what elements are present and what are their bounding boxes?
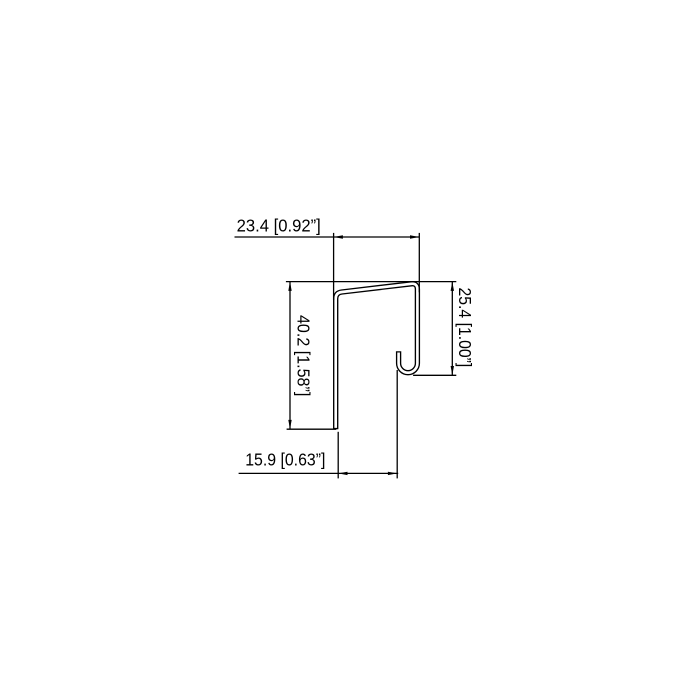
svg-text:23.4 [0.92”]: 23.4 [0.92”] [237,216,321,236]
svg-text:40.2 [1.58”]: 40.2 [1.58”] [294,315,314,396]
svg-text:15.9 [0.63”]: 15.9 [0.63”] [245,450,325,470]
svg-text:25.4 [1.00”]: 25.4 [1.00”] [455,288,475,368]
